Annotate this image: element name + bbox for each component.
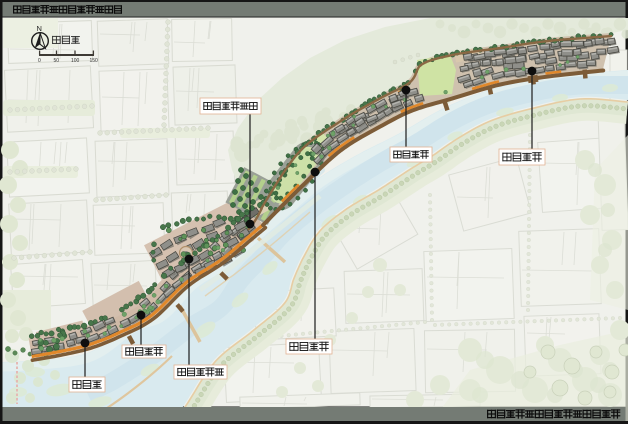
svg-text:N: N [37, 24, 42, 33]
svg-text:0: 0 [38, 58, 41, 64]
svg-text:50: 50 [54, 58, 60, 64]
svg-text:100: 100 [71, 58, 80, 64]
svg-text:150: 150 [90, 58, 99, 64]
